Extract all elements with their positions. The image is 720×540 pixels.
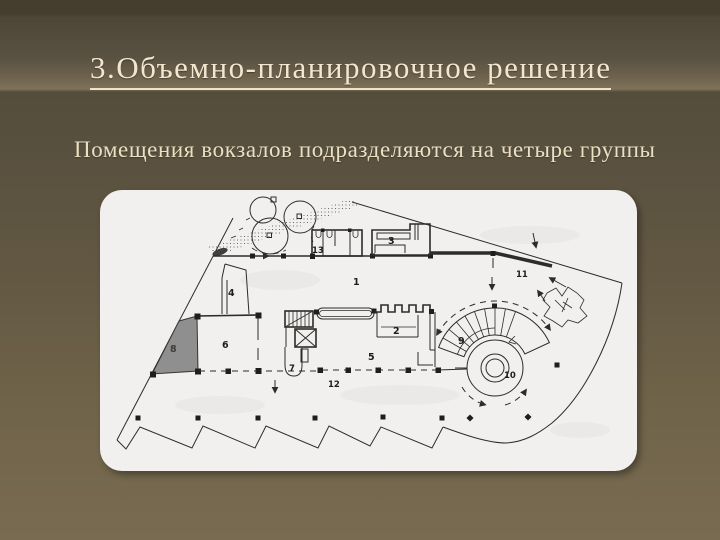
slide-subtitle: Помещения вокзалов подразделяются на чет… — [74, 137, 656, 163]
approach-arrow — [550, 278, 566, 287]
room-label-11: 11 — [516, 270, 528, 280]
approach-arrow2 — [538, 291, 545, 301]
room-label-3: 3 — [388, 236, 395, 247]
slide-background: 3.Объемно-планировочное решение Помещени… — [0, 0, 720, 540]
room-label-2: 2 — [393, 326, 400, 337]
building-3 — [372, 224, 430, 255]
floor-plan-panel: 1 2 3 4 5 6 7 8 9 10 11 12 13 — [100, 190, 637, 471]
room-label-6: 6 — [222, 340, 229, 351]
floor-plan-drawing: 1 2 3 4 5 6 7 8 9 10 11 12 13 — [100, 190, 637, 471]
room-labels: 1 2 3 4 5 6 7 8 9 10 11 12 13 — [170, 236, 528, 390]
room-label-7: 7 — [289, 364, 295, 374]
slide-title-text: 3.Объемно-планировочное решение — [90, 50, 611, 90]
room-label-13: 13 — [312, 246, 324, 256]
structure-4 — [222, 264, 249, 314]
tree-sketch-icon — [543, 287, 587, 327]
room-label-10: 10 — [504, 371, 516, 381]
sawtooth-boundary — [117, 426, 443, 449]
slide-title: 3.Объемно-планировочное решение — [90, 50, 611, 86]
room-label-4: 4 — [228, 288, 235, 299]
room-label-8: 8 — [170, 344, 177, 355]
room-label-12: 12 — [328, 380, 340, 390]
room-label-1: 1 — [353, 277, 360, 288]
room-label-9: 9 — [458, 336, 465, 347]
room-label-5: 5 — [368, 352, 375, 363]
escalator-capsule — [314, 308, 377, 319]
room-2-hall — [374, 305, 435, 367]
fan-stairs-9 — [437, 301, 550, 357]
